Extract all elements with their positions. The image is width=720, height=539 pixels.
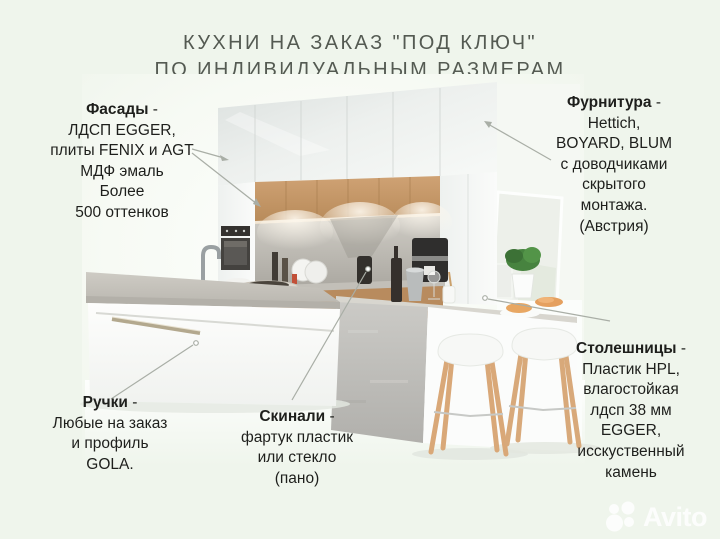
handles-line: Любые на заказ: [28, 414, 192, 435]
wine-bottle-icon: [391, 258, 402, 302]
annotation-furniture: Фурнитура - Hettich, BOYARD, BLUM с дово…: [530, 93, 698, 237]
pin-dot-icon: [194, 341, 199, 346]
countertops-line: исскуственный: [550, 442, 712, 463]
skinali-term: Скинали: [259, 408, 325, 425]
furniture-line: (Австрия): [530, 217, 698, 238]
furniture-line: с доводчиками: [530, 155, 698, 176]
furniture-term: Фурнитура: [567, 94, 652, 111]
small-jar: [292, 274, 297, 284]
annotation-handles: Ручки - Любые на заказ и профиль GOLA.: [28, 393, 192, 475]
handles-line: GOLA.: [28, 455, 192, 476]
handles-term: Ручки: [83, 394, 128, 411]
furniture-line: монтажа.: [530, 196, 698, 217]
facades-line: плиты FENIX и AGT: [26, 141, 218, 162]
pin-dot-icon: [366, 267, 371, 272]
countertops-term: Столешницы: [576, 340, 677, 357]
handles-line: и профиль: [28, 434, 192, 455]
oven: [221, 226, 250, 270]
annotation-facades: Фасады - ЛДСП EGGER, плиты FENIX и AGT М…: [26, 100, 218, 224]
pin-dot-icon: [483, 296, 488, 301]
promo-image: КУХНИ НА ЗАКАЗ "ПОД КЛЮЧ" ПО ИНДИВИДУАЛЬ…: [0, 0, 720, 539]
plate-icon: [305, 261, 327, 283]
facades-line: МДФ эмаль: [26, 162, 218, 183]
facades-line: ЛДСП EGGER,: [26, 121, 218, 142]
furniture-line: Hettich,: [530, 114, 698, 135]
facades-line: Более: [26, 182, 218, 203]
skinali-line: (пано): [218, 469, 376, 490]
island-front: [88, 303, 340, 406]
annotation-skinali: Скинали - фартук пластик или стекло (пан…: [218, 407, 376, 489]
facades-line: 500 оттенков: [26, 203, 218, 224]
stool-seat: [438, 334, 503, 366]
bread-highlight: [538, 297, 554, 303]
skinali-line: или стекло: [218, 448, 376, 469]
white-jar: [443, 286, 455, 303]
countertops-line: EGGER,: [550, 421, 712, 442]
countertops-line: влагостойкая: [550, 380, 712, 401]
countertops-line: камень: [550, 463, 712, 484]
ice-bucket-icon: [406, 270, 424, 301]
skinali-line: фартук пластик: [218, 428, 376, 449]
facades-term: Фасады: [86, 101, 148, 118]
furniture-line: скрытого: [530, 175, 698, 196]
furniture-line: BOYARD, BLUM: [530, 134, 698, 155]
annotation-countertops: Столешницы - Пластик HPL, влагостойкая л…: [550, 339, 712, 483]
countertops-line: лдсп 38 мм: [550, 401, 712, 422]
countertops-line: Пластик HPL,: [550, 360, 712, 381]
